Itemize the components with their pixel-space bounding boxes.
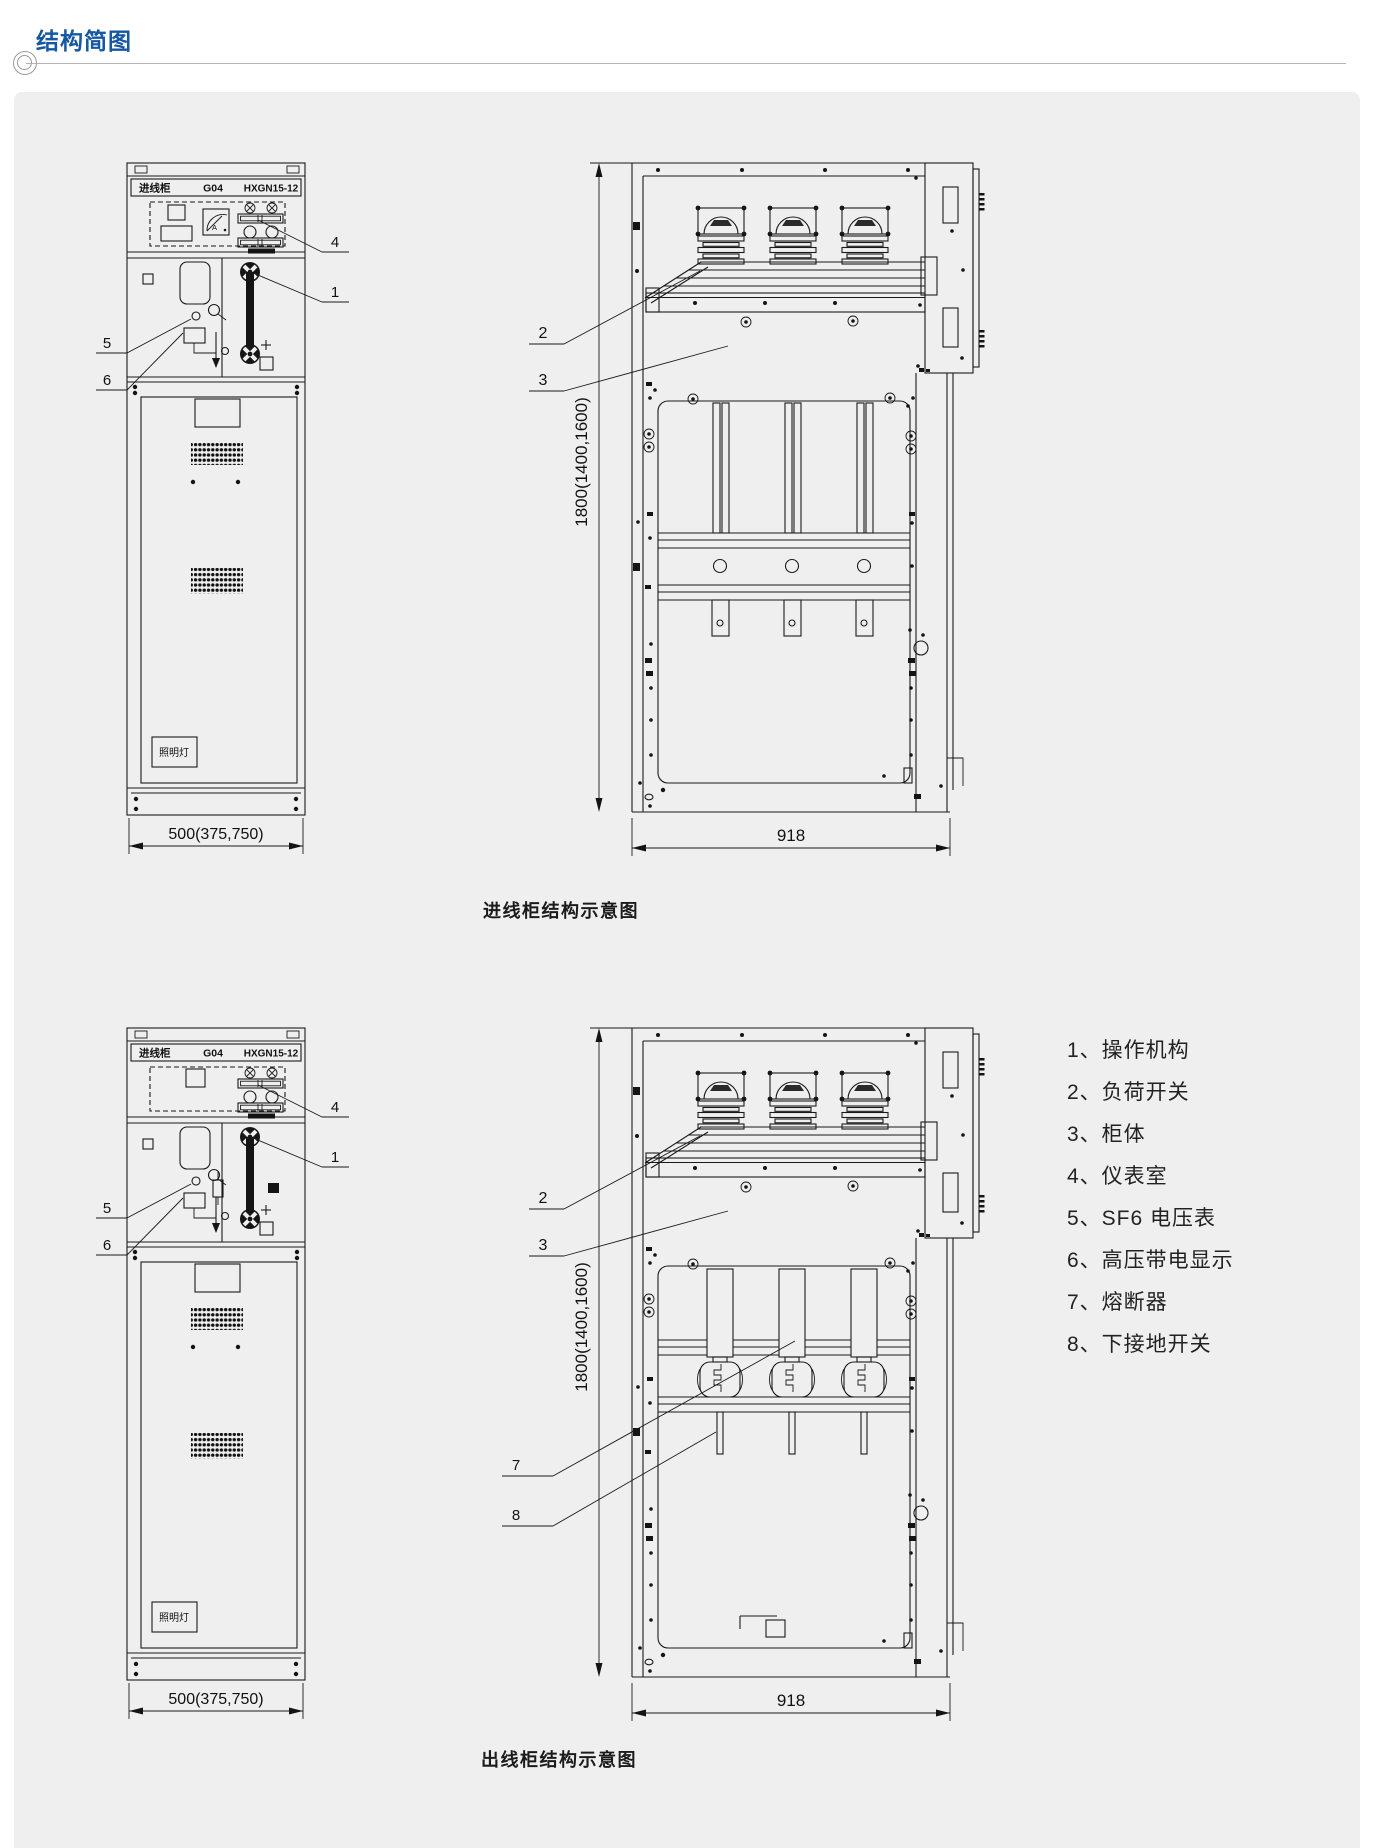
legend-item-1: 1、操作机构 — [1067, 1030, 1234, 1072]
fig1-side-interior — [658, 403, 910, 636]
callout-6: 6 — [103, 372, 111, 389]
legend-item-8: 8、下接地开关 — [1067, 1324, 1234, 1366]
ammeter-label: A — [212, 223, 217, 232]
fig1-front-view — [127, 163, 305, 854]
callout-3: 3 — [539, 1237, 548, 1254]
fig1-side-view — [572, 163, 985, 856]
parts-legend: 1、操作机构 2、负荷开关 3、柜体 4、仪表室 5、SF6 电压表 6、高压带… — [1067, 1030, 1234, 1366]
legend-item-6: 6、高压带电显示 — [1067, 1240, 1234, 1282]
legend-item-4: 4、仪表室 — [1067, 1156, 1234, 1198]
fig2-front-instruments — [186, 1069, 279, 1205]
callout-3: 3 — [539, 372, 548, 389]
callout-4: 4 — [331, 1099, 339, 1116]
legend-item-3: 3、柜体 — [1067, 1114, 1234, 1156]
legend-item-5: 5、SF6 电压表 — [1067, 1198, 1234, 1240]
figure2-caption: 出线柜结构示意图 — [481, 1746, 637, 1772]
structure-diagrams-canvas: 进线柜 G04 HXGN15-12 — [0, 0, 1373, 1848]
callout-2: 2 — [539, 325, 548, 342]
fig1-front-instruments: A — [161, 205, 229, 241]
callout-6: 6 — [103, 1237, 111, 1254]
legend-item-2: 2、负荷开关 — [1067, 1072, 1234, 1114]
callout-8: 8 — [512, 1507, 520, 1524]
callout-2: 2 — [539, 1190, 548, 1207]
fig2-side-interior — [658, 1269, 910, 1637]
fig2-front-view — [127, 1028, 305, 1719]
callout-1: 1 — [331, 284, 339, 301]
callout-1: 1 — [331, 1149, 339, 1166]
catalog-page: 结构简图 — [0, 0, 1373, 1848]
callout-7: 7 — [512, 1457, 520, 1474]
legend-item-7: 7、熔断器 — [1067, 1282, 1234, 1324]
figure1-caption: 进线柜结构示意图 — [483, 897, 639, 923]
callout-5: 5 — [103, 335, 111, 352]
callout-5: 5 — [103, 1200, 111, 1217]
callout-4: 4 — [331, 234, 339, 251]
fig2-side-view — [572, 1028, 985, 1721]
